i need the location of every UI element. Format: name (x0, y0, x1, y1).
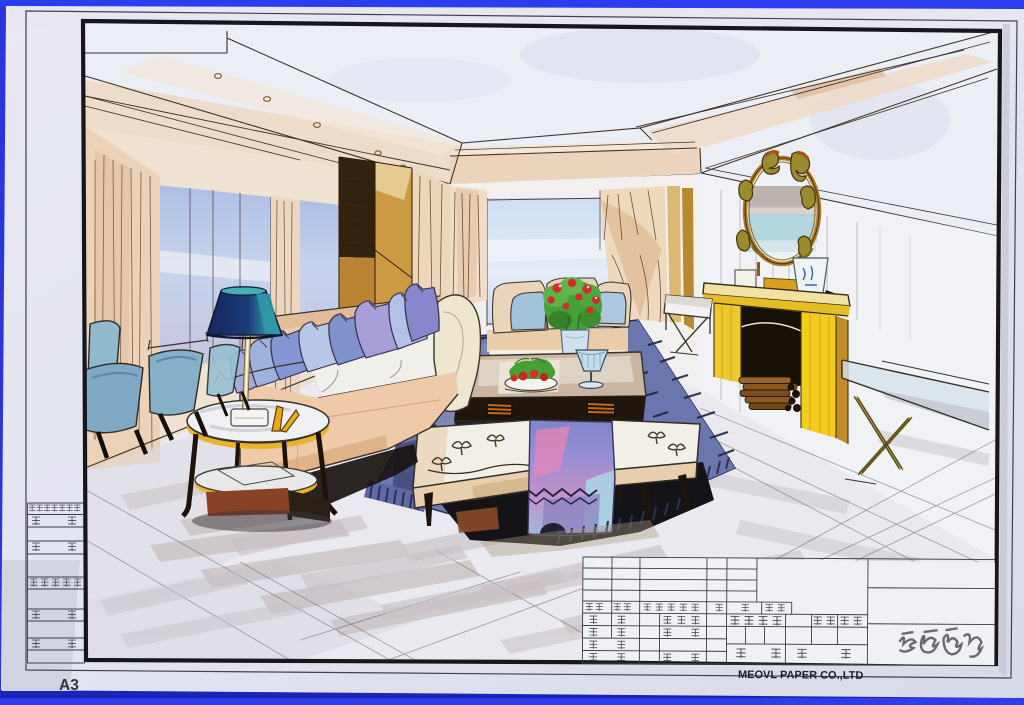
svg-text:A3: A3 (59, 677, 79, 694)
svg-text:MEOVL PAPER CO.,LTD: MEOVL PAPER CO.,LTD (738, 669, 863, 682)
